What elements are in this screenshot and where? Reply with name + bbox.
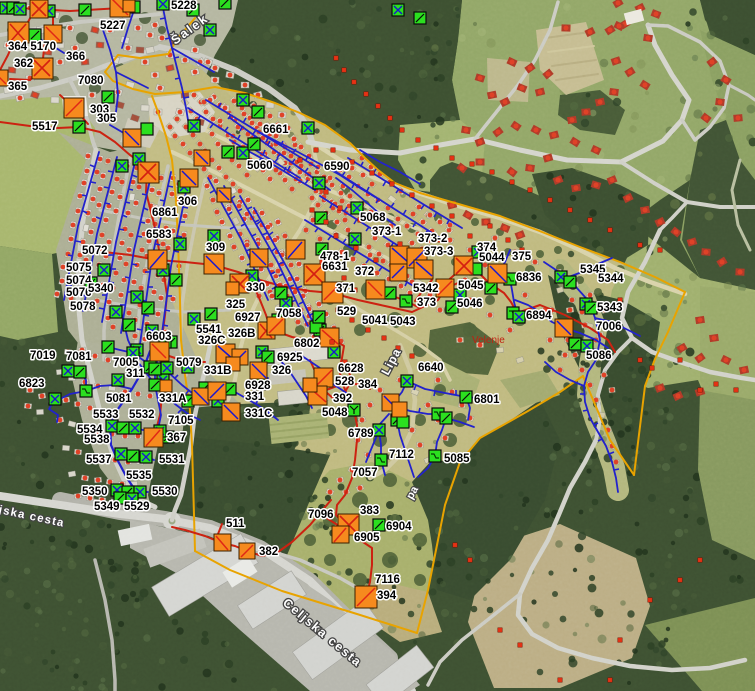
svg-text:5075: 5075 [66,262,92,274]
svg-text:6925: 6925 [277,352,303,364]
svg-text:5538: 5538 [84,434,110,446]
svg-text:5529: 5529 [124,501,150,513]
svg-text:7006: 7006 [596,321,622,333]
svg-text:5344: 5344 [598,273,624,285]
svg-text:383: 383 [360,505,379,517]
svg-text:6603: 6603 [146,331,172,343]
svg-text:375: 375 [512,251,532,263]
svg-text:6640: 6640 [418,362,444,374]
svg-text:330: 330 [246,282,265,294]
svg-text:5041: 5041 [362,315,388,327]
svg-text:7019: 7019 [30,350,56,362]
svg-text:5044: 5044 [479,252,505,264]
svg-text:367: 367 [167,432,186,444]
svg-text:5343: 5343 [597,302,623,314]
svg-text:392: 392 [333,393,352,405]
svg-text:7081: 7081 [66,351,92,363]
svg-text:6836: 6836 [516,272,542,284]
svg-text:325: 325 [226,299,246,311]
svg-text:5535: 5535 [126,470,152,482]
svg-text:366: 366 [66,51,85,63]
svg-text:5227: 5227 [100,20,126,32]
svg-text:6927: 6927 [235,312,261,324]
svg-text:305: 305 [97,113,117,125]
svg-text:7105: 7105 [168,415,194,427]
svg-text:6823: 6823 [19,378,45,390]
svg-text:331A: 331A [159,393,187,405]
svg-text:528: 528 [335,376,355,388]
svg-text:326: 326 [272,365,291,377]
svg-text:6904: 6904 [386,521,412,533]
svg-text:372: 372 [355,266,374,278]
svg-text:373-3: 373-3 [424,246,453,258]
svg-text:5060: 5060 [247,160,273,172]
svg-text:373: 373 [417,297,436,309]
svg-text:5532: 5532 [129,409,155,421]
svg-text:6628: 6628 [338,363,364,375]
svg-text:5086: 5086 [586,350,612,362]
svg-text:373-2: 373-2 [418,233,447,245]
svg-text:6801: 6801 [474,394,500,406]
svg-text:365: 365 [8,81,28,93]
svg-text:5531: 5531 [159,454,185,466]
svg-text:5045: 5045 [458,280,484,292]
svg-text:6789: 6789 [348,428,374,440]
svg-text:371: 371 [336,283,356,295]
svg-text:5350: 5350 [82,486,108,498]
svg-text:6802: 6802 [294,338,320,350]
svg-text:331: 331 [245,391,265,403]
svg-text:382: 382 [259,546,278,558]
svg-text:373-1: 373-1 [372,226,402,238]
svg-text:5072: 5072 [82,245,108,257]
svg-text:7058: 7058 [276,308,302,320]
svg-text:306: 306 [178,196,197,208]
svg-text:5340: 5340 [88,283,114,295]
svg-text:394: 394 [377,590,397,602]
svg-text:326C: 326C [198,335,226,347]
svg-text:529: 529 [337,306,356,318]
svg-text:331C: 331C [245,408,273,420]
svg-text:6861: 6861 [152,207,178,219]
svg-text:511: 511 [226,518,245,530]
svg-text:311: 311 [126,368,145,380]
svg-text:5046: 5046 [457,298,483,310]
svg-text:5349: 5349 [94,501,120,513]
svg-text:5085: 5085 [444,453,470,465]
svg-text:5517: 5517 [32,121,58,133]
svg-text:7116: 7116 [375,574,400,586]
svg-text:5342: 5342 [413,283,439,295]
svg-text:7057: 7057 [352,467,378,479]
svg-text:5530: 5530 [152,486,178,498]
svg-text:326B: 326B [228,328,256,340]
svg-text:6661: 6661 [263,124,289,136]
svg-text:384: 384 [358,379,378,391]
svg-text:7096: 7096 [308,509,334,521]
svg-text:6590: 6590 [324,161,350,173]
svg-text:364 5170: 364 5170 [8,41,56,53]
svg-text:5078: 5078 [70,301,96,313]
svg-text:362: 362 [14,58,33,70]
svg-text:7080: 7080 [78,75,104,87]
svg-text:6583: 6583 [146,229,172,241]
svg-text:6631: 6631 [322,261,348,273]
svg-text:5533: 5533 [93,409,119,421]
svg-text:5537: 5537 [86,454,112,466]
svg-text:5068: 5068 [360,212,386,224]
svg-text:Velenje: Velenje [472,335,505,346]
svg-text:5228: 5228 [171,0,197,12]
svg-text:5081: 5081 [106,393,132,405]
svg-text:5079: 5079 [176,357,202,369]
svg-text:7112: 7112 [389,449,414,461]
svg-text:309: 309 [206,242,225,254]
svg-text:6894: 6894 [526,310,552,322]
svg-text:6905: 6905 [354,532,380,544]
svg-text:331B: 331B [204,365,232,377]
svg-text:5043: 5043 [390,316,416,328]
svg-text:5048: 5048 [322,407,348,419]
